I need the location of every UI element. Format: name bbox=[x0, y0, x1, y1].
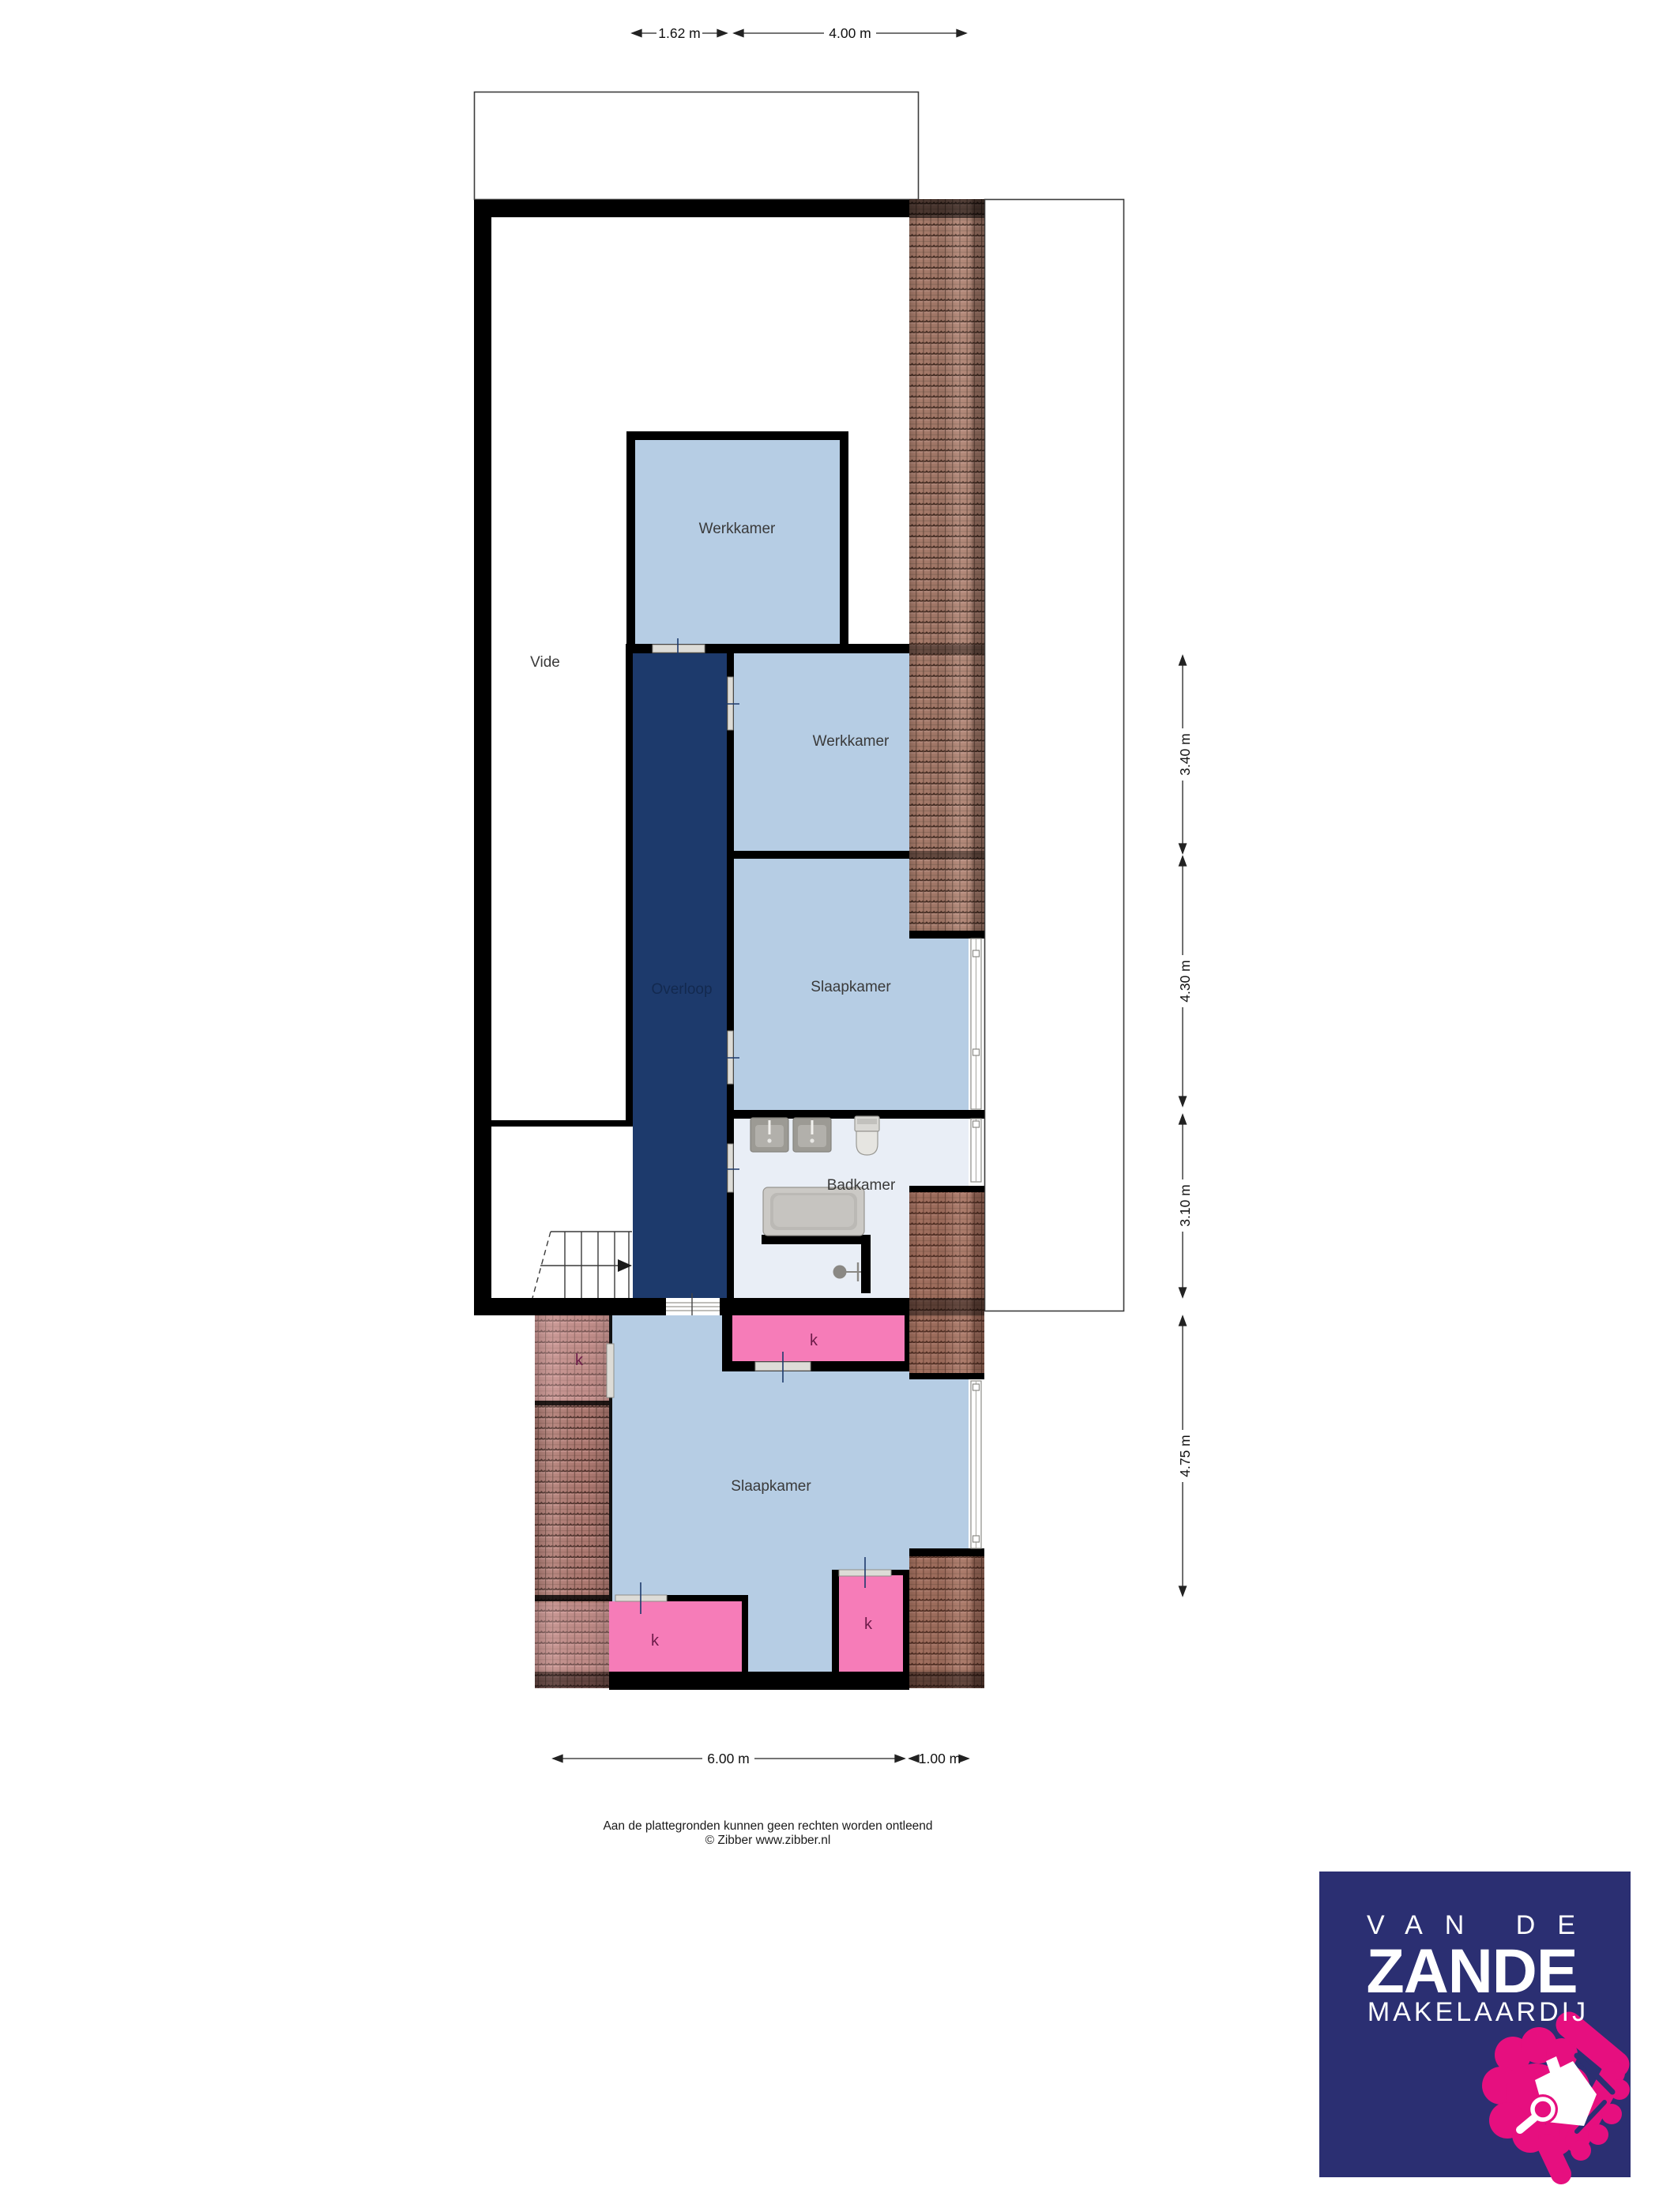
svg-text:MAKELAARDIJ: MAKELAARDIJ bbox=[1367, 1997, 1589, 2027]
svg-text:Slaapkamer: Slaapkamer bbox=[811, 979, 891, 995]
svg-text:Overloop: Overloop bbox=[651, 981, 712, 998]
svg-text:Badkamer: Badkamer bbox=[827, 1177, 896, 1194]
svg-text:k: k bbox=[651, 1632, 660, 1650]
svg-text:ZANDE: ZANDE bbox=[1366, 1935, 1577, 2006]
svg-text:1.62 m: 1.62 m bbox=[658, 25, 701, 41]
svg-text:6.00 m: 6.00 m bbox=[707, 1751, 750, 1766]
svg-text:3.40 m: 3.40 m bbox=[1177, 733, 1193, 776]
svg-text:Slaapkamer: Slaapkamer bbox=[731, 1478, 811, 1495]
svg-text:4.30 m: 4.30 m bbox=[1177, 960, 1193, 1003]
svg-text:4.00 m: 4.00 m bbox=[829, 25, 871, 41]
svg-text:3.10 m: 3.10 m bbox=[1177, 1184, 1193, 1227]
svg-text:Werkkamer: Werkkamer bbox=[813, 733, 890, 750]
svg-text:Aan de plattegronden kunnen ge: Aan de plattegronden kunnen geen rechten… bbox=[603, 1819, 932, 1833]
svg-text:k: k bbox=[864, 1616, 873, 1633]
svg-text:k: k bbox=[810, 1332, 818, 1349]
svg-text:© Zibber www.zibber.nl: © Zibber www.zibber.nl bbox=[705, 1834, 831, 1847]
svg-text:k: k bbox=[575, 1352, 584, 1369]
svg-text:Vide: Vide bbox=[530, 654, 560, 671]
svg-text:4.75 m: 4.75 m bbox=[1177, 1435, 1193, 1477]
svg-text:1.00 m: 1.00 m bbox=[919, 1751, 961, 1766]
svg-text:Werkkamer: Werkkamer bbox=[699, 521, 776, 537]
